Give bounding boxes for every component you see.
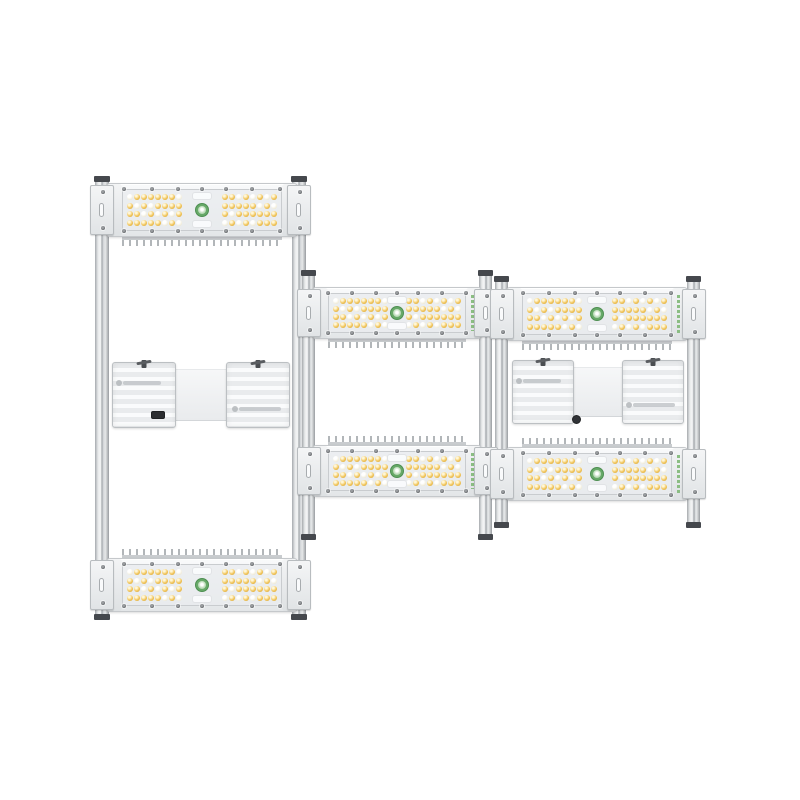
led — [548, 458, 554, 464]
led — [661, 475, 667, 481]
led — [134, 211, 140, 217]
molded-detail — [192, 220, 212, 228]
slot-oval — [691, 467, 696, 481]
panel-center — [392, 452, 402, 490]
led — [264, 203, 270, 209]
led — [555, 307, 561, 313]
screw — [350, 489, 354, 493]
molded-detail — [587, 324, 607, 332]
led — [527, 324, 533, 330]
led — [127, 569, 133, 575]
screw — [416, 331, 420, 335]
led — [434, 314, 440, 320]
led — [169, 578, 175, 584]
led — [548, 484, 554, 490]
led — [562, 307, 568, 313]
led — [333, 298, 339, 304]
screw — [200, 562, 204, 566]
led — [640, 324, 646, 330]
led — [229, 203, 235, 209]
led — [626, 315, 632, 321]
led — [169, 211, 175, 217]
led — [612, 298, 618, 304]
led — [127, 595, 133, 601]
led — [222, 578, 228, 584]
led — [569, 458, 575, 464]
led — [271, 586, 277, 592]
rail-end-cap — [291, 614, 307, 620]
led — [420, 464, 426, 470]
led — [534, 475, 540, 481]
sprout-glyph — [198, 206, 206, 214]
led — [361, 456, 367, 462]
led — [236, 203, 242, 209]
led — [257, 220, 263, 226]
led — [661, 315, 667, 321]
screw — [200, 229, 204, 233]
slot-oval — [296, 203, 301, 217]
panel-center — [186, 190, 218, 230]
panel-center — [186, 565, 218, 605]
bracket-plate — [490, 449, 514, 499]
led — [347, 298, 353, 304]
led — [134, 203, 140, 209]
led — [527, 467, 533, 473]
led — [633, 298, 639, 304]
led — [576, 467, 582, 473]
led — [661, 458, 667, 464]
screw — [395, 331, 399, 335]
brand-mark — [123, 381, 161, 385]
led-array — [402, 294, 465, 332]
led — [155, 586, 161, 592]
led — [413, 314, 419, 320]
led — [427, 306, 433, 312]
led-array — [329, 452, 392, 490]
led — [661, 307, 667, 313]
molded-detail — [587, 484, 607, 492]
led — [162, 194, 168, 200]
sprout-logo-icon — [390, 464, 404, 478]
led — [243, 569, 249, 575]
led — [640, 315, 646, 321]
led — [406, 314, 412, 320]
screw — [326, 331, 330, 335]
screw — [278, 187, 282, 191]
rail-end-cap — [478, 534, 493, 540]
led — [420, 480, 426, 486]
screw — [485, 452, 489, 456]
led — [264, 586, 270, 592]
led — [271, 203, 277, 209]
led — [127, 578, 133, 584]
led — [647, 484, 653, 490]
led — [264, 578, 270, 584]
lens-cover — [122, 564, 282, 606]
led — [257, 194, 263, 200]
led — [368, 322, 374, 328]
screw — [485, 328, 489, 332]
led — [647, 458, 653, 464]
led — [222, 220, 228, 226]
led — [455, 480, 461, 486]
led — [264, 211, 270, 217]
led — [562, 315, 568, 321]
led — [661, 467, 667, 473]
screw — [200, 604, 204, 608]
screw — [501, 490, 505, 494]
led-panel — [106, 558, 298, 612]
led — [626, 298, 632, 304]
led — [612, 475, 618, 481]
led — [654, 315, 660, 321]
led — [420, 322, 426, 328]
screw — [618, 451, 622, 455]
led — [176, 194, 182, 200]
led — [633, 467, 639, 473]
screw — [224, 229, 228, 233]
led — [134, 578, 140, 584]
led — [534, 324, 540, 330]
led — [654, 467, 660, 473]
led — [354, 314, 360, 320]
led — [434, 322, 440, 328]
led — [541, 467, 547, 473]
screw — [464, 331, 468, 335]
led — [548, 324, 554, 330]
led — [148, 586, 154, 592]
molded-detail — [192, 595, 212, 603]
led — [243, 220, 249, 226]
led — [347, 464, 353, 470]
slot-oval — [296, 578, 301, 592]
led — [155, 578, 161, 584]
led — [155, 203, 161, 209]
screw — [547, 333, 551, 337]
led-array — [218, 565, 281, 605]
led — [576, 484, 582, 490]
led — [569, 307, 575, 313]
led — [229, 211, 235, 217]
led — [654, 307, 660, 313]
led — [148, 578, 154, 584]
led — [162, 586, 168, 592]
led — [264, 595, 270, 601]
led — [562, 475, 568, 481]
screw — [464, 489, 468, 493]
led — [562, 298, 568, 304]
led-array — [123, 190, 186, 230]
led — [375, 456, 381, 462]
led — [155, 220, 161, 226]
led — [264, 569, 270, 575]
led — [647, 315, 653, 321]
led — [264, 194, 270, 200]
led — [541, 475, 547, 481]
led — [548, 475, 554, 481]
screw — [501, 454, 505, 458]
wing-bolt — [541, 358, 546, 366]
screw — [693, 330, 697, 334]
screw — [224, 562, 228, 566]
led — [448, 472, 454, 478]
led — [576, 298, 582, 304]
sprout-glyph — [393, 309, 401, 317]
sprout-logo-icon — [195, 203, 209, 217]
led — [176, 569, 182, 575]
rail-end-cap — [686, 276, 701, 282]
led — [534, 298, 540, 304]
led — [382, 464, 388, 470]
led — [654, 458, 660, 464]
led — [236, 569, 242, 575]
slot-oval — [306, 464, 311, 478]
led — [640, 458, 646, 464]
bracket-plate — [287, 560, 311, 610]
screw — [693, 294, 697, 298]
screw — [395, 449, 399, 453]
led — [413, 322, 419, 328]
led — [413, 472, 419, 478]
rail-end-cap — [301, 534, 316, 540]
led — [569, 315, 575, 321]
led — [534, 458, 540, 464]
led — [527, 298, 533, 304]
panel-center — [586, 294, 608, 334]
slot-oval — [499, 307, 504, 321]
screw — [440, 449, 444, 453]
scene — [0, 0, 800, 800]
led — [527, 307, 533, 313]
molded-detail — [192, 192, 212, 200]
led — [176, 211, 182, 217]
led — [633, 324, 639, 330]
led — [155, 211, 161, 217]
led — [420, 306, 426, 312]
led — [441, 322, 447, 328]
led — [619, 324, 625, 330]
led — [257, 211, 263, 217]
slot-oval — [499, 467, 504, 481]
led — [661, 324, 667, 330]
screw — [485, 294, 489, 298]
screw — [501, 330, 505, 334]
led — [333, 322, 339, 328]
led — [141, 586, 147, 592]
led — [354, 298, 360, 304]
led — [375, 322, 381, 328]
screw — [176, 604, 180, 608]
led — [257, 586, 263, 592]
led — [413, 480, 419, 486]
led — [236, 586, 242, 592]
led — [548, 307, 554, 313]
led — [271, 595, 277, 601]
led — [236, 211, 242, 217]
led — [612, 458, 618, 464]
led — [340, 456, 346, 462]
led — [576, 307, 582, 313]
rail-end-cap — [478, 270, 493, 276]
led — [448, 480, 454, 486]
screw — [501, 294, 505, 298]
led-array — [402, 452, 465, 490]
led — [548, 298, 554, 304]
bracket-plate — [490, 289, 514, 339]
led — [527, 484, 533, 490]
led-array — [523, 454, 586, 494]
led — [155, 595, 161, 601]
led — [148, 220, 154, 226]
led — [155, 194, 161, 200]
driver-plate-right — [226, 362, 290, 428]
led — [619, 298, 625, 304]
led — [141, 203, 147, 209]
screw — [122, 229, 126, 233]
screw — [374, 291, 378, 295]
led — [434, 464, 440, 470]
led — [368, 464, 374, 470]
led — [612, 484, 618, 490]
led — [541, 484, 547, 490]
led — [654, 484, 660, 490]
lens-cover — [122, 189, 282, 231]
led — [619, 475, 625, 481]
led — [333, 314, 339, 320]
led-array — [329, 294, 392, 332]
led — [176, 220, 182, 226]
led — [141, 220, 147, 226]
bracket-plate — [287, 185, 311, 235]
screw — [101, 190, 105, 194]
led-panel — [312, 287, 482, 339]
led — [441, 472, 447, 478]
led — [236, 194, 242, 200]
led — [333, 480, 339, 486]
led — [236, 578, 242, 584]
led — [141, 569, 147, 575]
led — [654, 324, 660, 330]
molded-detail — [387, 296, 407, 304]
led — [250, 569, 256, 575]
led — [548, 467, 554, 473]
led — [413, 298, 419, 304]
led — [455, 306, 461, 312]
led — [134, 194, 140, 200]
led — [619, 458, 625, 464]
led-array — [218, 190, 281, 230]
led — [562, 458, 568, 464]
led — [333, 464, 339, 470]
led — [647, 298, 653, 304]
screw — [416, 489, 420, 493]
led — [375, 314, 381, 320]
screw — [374, 489, 378, 493]
screw — [440, 331, 444, 335]
led — [222, 203, 228, 209]
brand-mark — [239, 407, 281, 411]
led — [257, 578, 263, 584]
rail-end-cap — [301, 270, 316, 276]
led — [169, 194, 175, 200]
rail-end-cap — [94, 176, 110, 182]
led — [243, 194, 249, 200]
led — [420, 456, 426, 462]
led — [271, 578, 277, 584]
led — [250, 586, 256, 592]
led — [250, 211, 256, 217]
screw — [416, 291, 420, 295]
screw — [573, 451, 577, 455]
brand-text-vertical — [677, 455, 680, 492]
led — [626, 307, 632, 313]
led — [654, 475, 660, 481]
led — [633, 315, 639, 321]
bracket-plate — [682, 449, 706, 499]
molded-detail — [192, 567, 212, 575]
led — [427, 456, 433, 462]
screw — [278, 562, 282, 566]
led — [354, 456, 360, 462]
brand-mark — [523, 379, 561, 383]
led — [347, 306, 353, 312]
screw — [350, 331, 354, 335]
slot-oval — [306, 306, 311, 320]
led-panel — [506, 447, 688, 501]
led — [340, 472, 346, 478]
screw — [101, 565, 105, 569]
led — [626, 467, 632, 473]
led — [434, 298, 440, 304]
led — [619, 484, 625, 490]
sprout-logo-icon — [590, 467, 604, 481]
led — [176, 586, 182, 592]
led — [162, 578, 168, 584]
driver-link-bar — [566, 367, 630, 417]
led — [661, 298, 667, 304]
led — [141, 211, 147, 217]
led — [619, 467, 625, 473]
slot-oval — [483, 306, 488, 320]
connector-port — [151, 411, 165, 419]
led — [162, 595, 168, 601]
led — [222, 586, 228, 592]
led — [368, 472, 374, 478]
screw — [464, 291, 468, 295]
screw — [224, 187, 228, 191]
led — [375, 464, 381, 470]
led — [455, 314, 461, 320]
led — [361, 322, 367, 328]
led — [413, 306, 419, 312]
led — [127, 220, 133, 226]
led — [619, 307, 625, 313]
led — [354, 306, 360, 312]
led — [368, 306, 374, 312]
led — [534, 315, 540, 321]
led — [155, 569, 161, 575]
led — [455, 464, 461, 470]
led — [340, 322, 346, 328]
led — [340, 464, 346, 470]
screw — [150, 562, 154, 566]
led — [555, 467, 561, 473]
led-array — [608, 294, 671, 334]
led — [257, 203, 263, 209]
led — [368, 298, 374, 304]
led — [534, 467, 540, 473]
led — [448, 298, 454, 304]
